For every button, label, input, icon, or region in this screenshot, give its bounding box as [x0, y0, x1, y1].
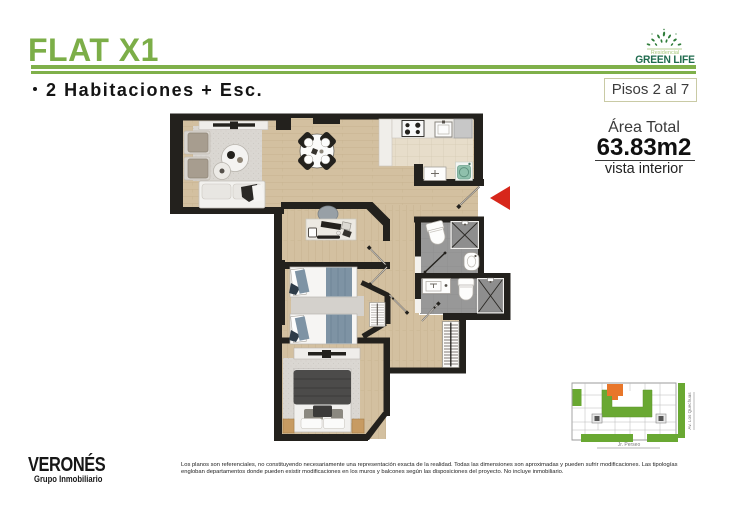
- svg-text:Av. Los Quechuas: Av. Los Quechuas: [687, 392, 692, 430]
- svg-text:Jr. Perseo: Jr. Perseo: [618, 442, 641, 448]
